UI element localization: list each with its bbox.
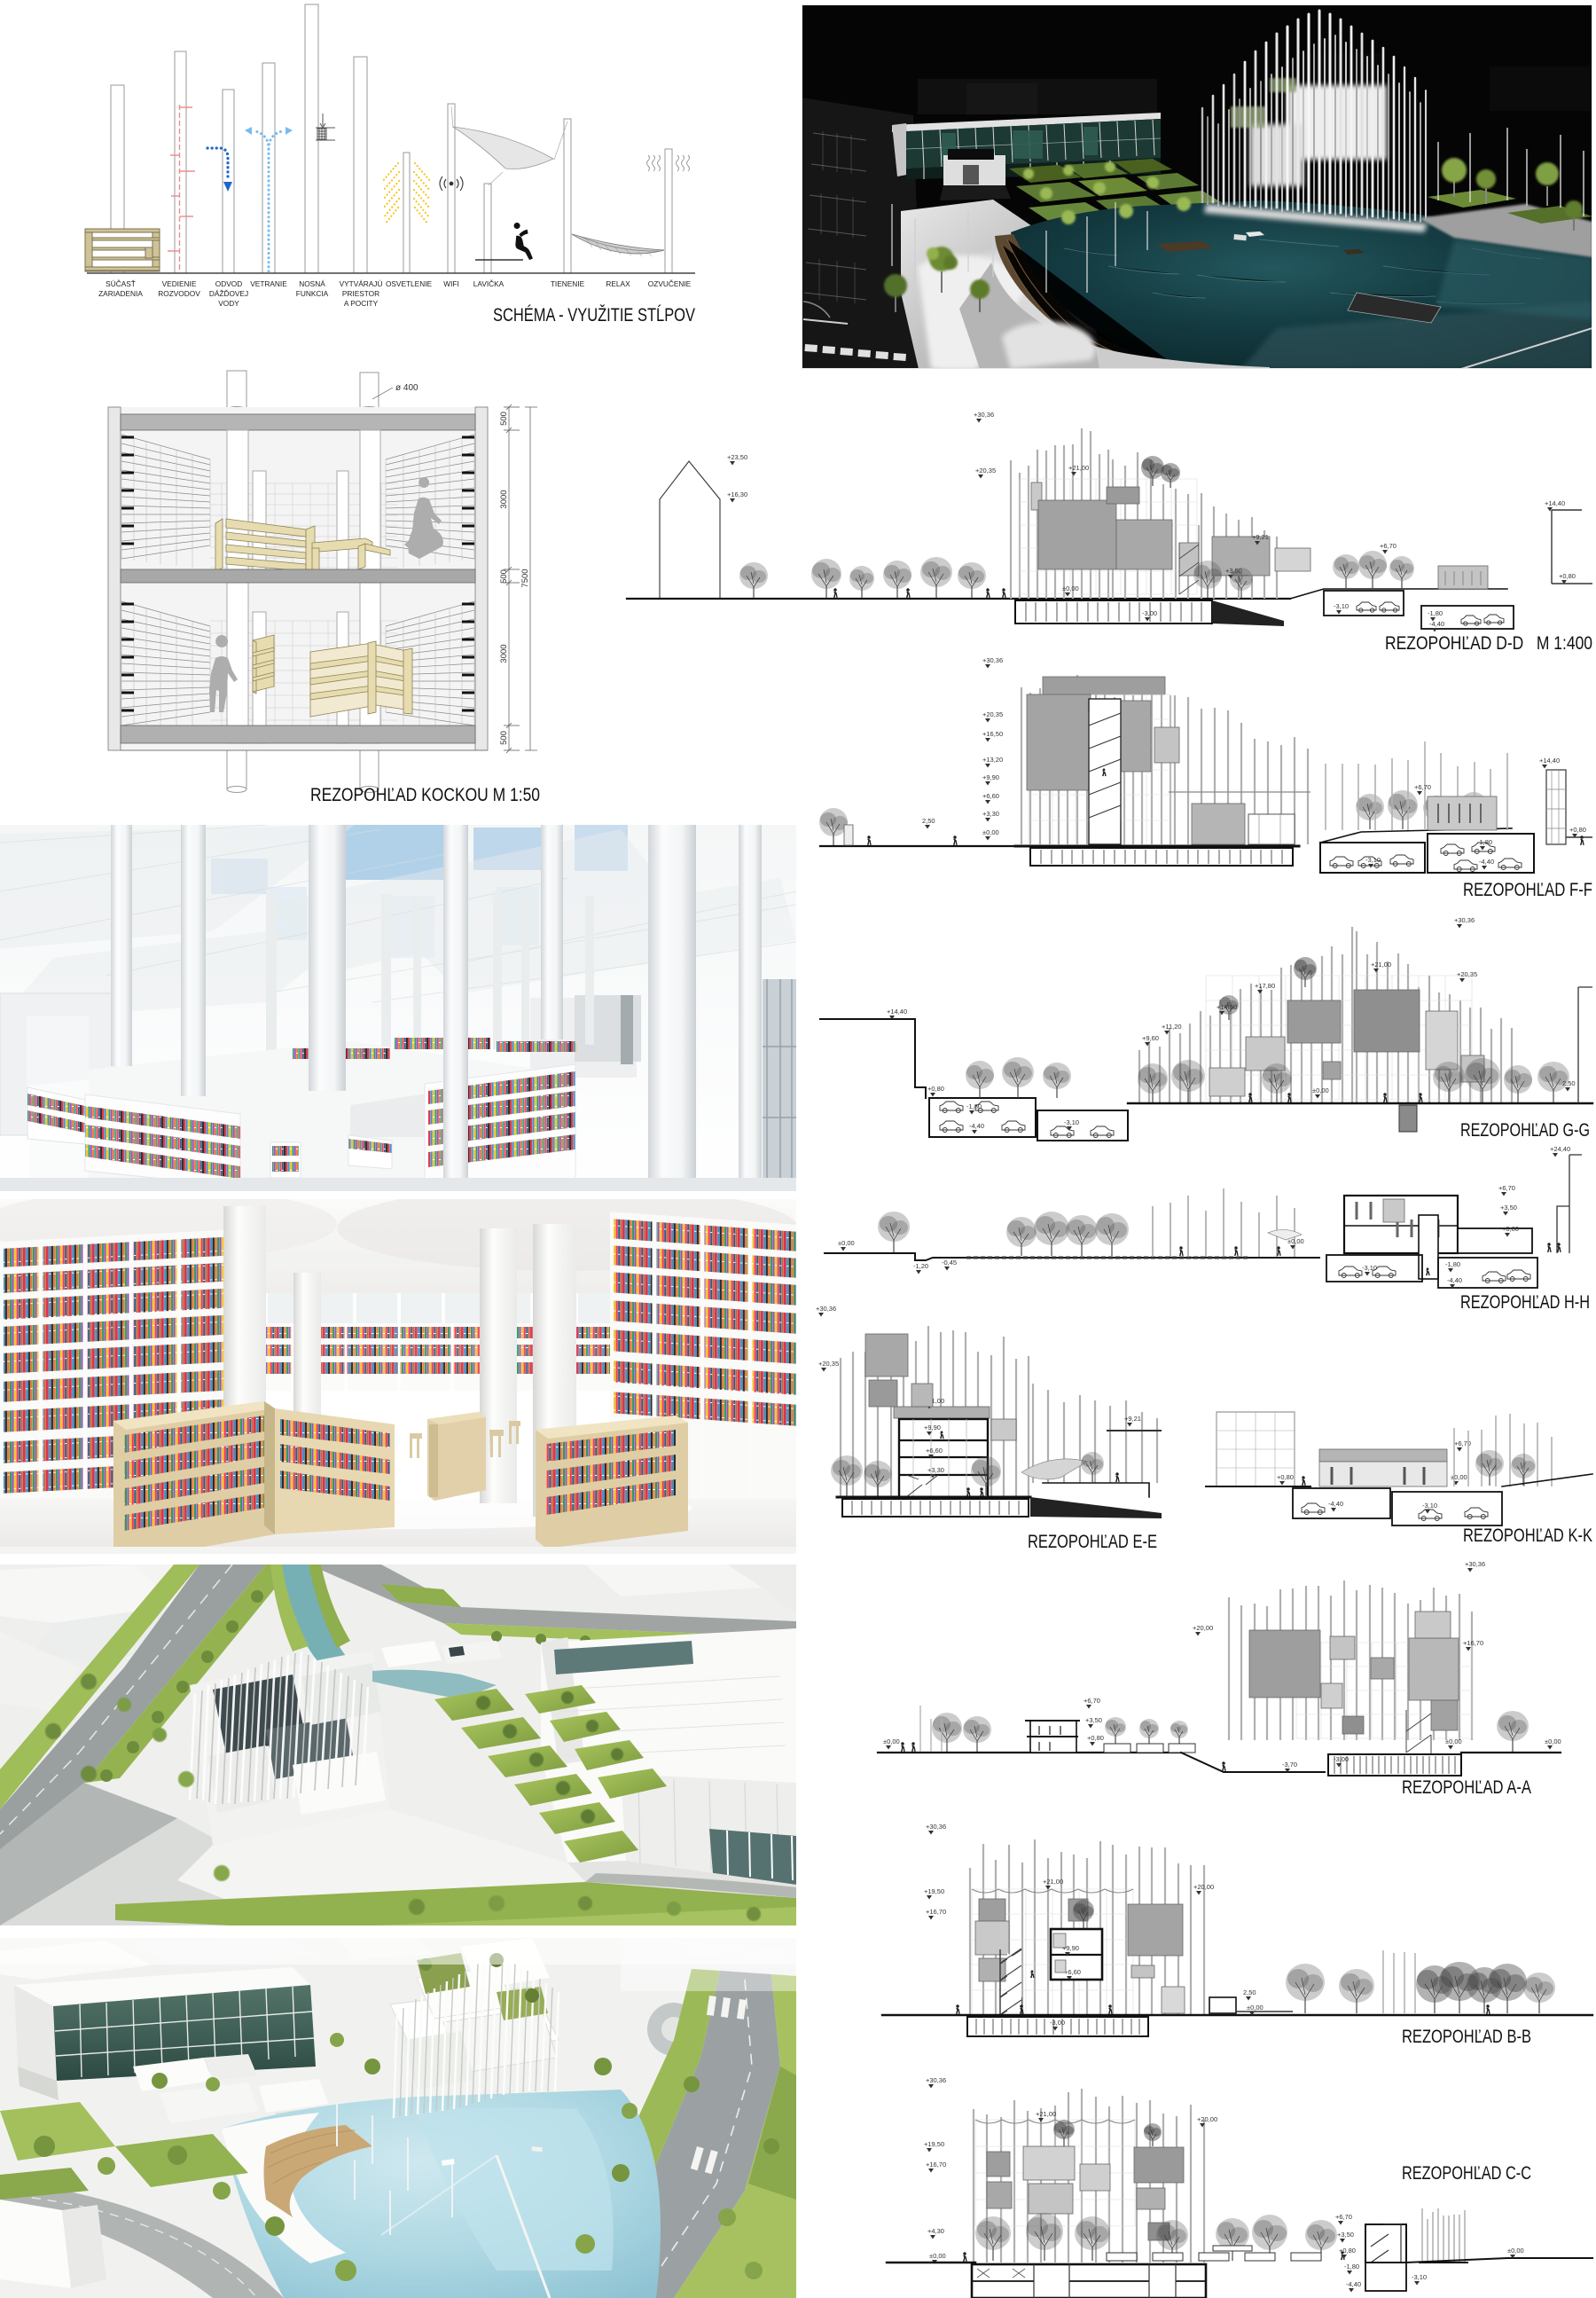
svg-text:-1,80: -1,80 <box>1445 1260 1460 1268</box>
svg-text:+30,36: +30,36 <box>926 2076 946 2084</box>
svg-text:-3,10: -3,10 <box>1334 602 1349 610</box>
svg-text:+30,36: +30,36 <box>816 1305 836 1313</box>
svg-text:-4,40: -4,40 <box>969 1122 984 1130</box>
svg-text:+20,00: +20,00 <box>1193 1624 1213 1632</box>
svg-text:LAVIČKA: LAVIČKA <box>473 279 505 288</box>
svg-text:RELAX: RELAX <box>606 279 630 288</box>
svg-text:+0,80: +0,80 <box>927 1085 944 1093</box>
svg-text:+9,60: +9,60 <box>1142 1034 1159 1042</box>
svg-text:REZOPOHĽAD KOCKOU M 1:50: REZOPOHĽAD KOCKOU M 1:50 <box>310 785 540 805</box>
svg-text:+9,21: +9,21 <box>1252 533 1269 541</box>
svg-text:A POCITY: A POCITY <box>344 299 379 308</box>
svg-text:SCHÉMA - VYUŽITIE STĹPOV: SCHÉMA - VYUŽITIE STĹPOV <box>493 305 695 325</box>
svg-text:-3,10: -3,10 <box>1362 1264 1377 1272</box>
svg-text:-4,40: -4,40 <box>1447 1276 1462 1284</box>
svg-text:-1,20: -1,20 <box>913 1262 928 1270</box>
svg-text:±0,00: ±0,00 <box>1062 584 1079 592</box>
svg-text:-3,10: -3,10 <box>1412 2273 1427 2281</box>
svg-text:+0,80: +0,80 <box>1569 826 1586 834</box>
svg-text:+0,80: +0,80 <box>1087 1734 1104 1742</box>
svg-text:-3,10: -3,10 <box>1422 1502 1437 1510</box>
svg-text:+20,35: +20,35 <box>818 1360 839 1368</box>
svg-text:+21,00: +21,00 <box>1043 1878 1063 1886</box>
svg-text:+16,70: +16,70 <box>926 1908 946 1916</box>
svg-text:REZOPOHĽAD K-K: REZOPOHĽAD K-K <box>1463 1525 1592 1546</box>
svg-text:ø 400: ø 400 <box>395 383 419 393</box>
svg-text:VODY: VODY <box>218 299 239 308</box>
svg-text:+0,80: +0,80 <box>1502 1225 1519 1233</box>
svg-text:+20,35: +20,35 <box>975 467 996 475</box>
svg-text:+0,80: +0,80 <box>1339 2247 1356 2255</box>
svg-text:+6,70: +6,70 <box>1084 1697 1100 1705</box>
svg-text:TIENENIE: TIENENIE <box>551 279 585 288</box>
svg-text:+30,36: +30,36 <box>926 1823 946 1831</box>
svg-text:+24,40: +24,40 <box>1550 1145 1570 1153</box>
svg-text:+30,36: +30,36 <box>974 411 994 419</box>
svg-text:500: 500 <box>499 412 509 426</box>
svg-text:-0,45: -0,45 <box>942 1259 957 1267</box>
svg-text:+20,00: +20,00 <box>1193 1883 1214 1891</box>
svg-text:-4,40: -4,40 <box>1429 620 1444 628</box>
svg-text:+14,40: +14,40 <box>1545 499 1565 507</box>
svg-text:2,50: 2,50 <box>1243 1988 1256 1996</box>
svg-text:-1,80: -1,80 <box>1344 2263 1359 2271</box>
svg-text:ROZVODOV: ROZVODOV <box>158 289 200 298</box>
svg-text:+16,70: +16,70 <box>1463 1639 1483 1647</box>
svg-text:+16,50: +16,50 <box>982 730 1003 738</box>
svg-text:+17,80: +17,80 <box>1255 982 1275 990</box>
svg-text:±0,00: ±0,00 <box>883 1737 900 1745</box>
svg-text:-3,00: -3,00 <box>1142 609 1157 617</box>
svg-text:REZOPOHĽAD H-H: REZOPOHĽAD H-H <box>1460 1292 1590 1313</box>
svg-text:+3,50: +3,50 <box>1085 1716 1102 1724</box>
svg-text:±0,00: ±0,00 <box>1507 2247 1524 2255</box>
svg-text:VYTVÁRAJÚ: VYTVÁRAJÚ <box>340 279 383 288</box>
svg-text:+30,36: +30,36 <box>1454 916 1475 924</box>
svg-text:-3,10: -3,10 <box>1365 856 1381 864</box>
svg-text:+14,50: +14,50 <box>1217 1003 1237 1011</box>
svg-text:VEDIENIE: VEDIENIE <box>162 279 197 288</box>
svg-text:+3,50: +3,50 <box>1337 2231 1354 2239</box>
svg-text:2,50: 2,50 <box>922 817 935 825</box>
svg-text:ODVOD: ODVOD <box>215 279 242 288</box>
svg-text:-4,40: -4,40 <box>1328 1500 1343 1508</box>
svg-text:500: 500 <box>499 731 509 745</box>
svg-text:+23,50: +23,50 <box>727 453 747 461</box>
svg-text:+6,60: +6,60 <box>1064 1968 1081 1976</box>
svg-text:±0,00: ±0,00 <box>982 828 999 836</box>
svg-text:+19,50: +19,50 <box>924 1887 944 1895</box>
svg-text:+13,20: +13,20 <box>982 756 1003 764</box>
svg-text:+3,30: +3,30 <box>982 810 999 818</box>
svg-text:+6,60: +6,60 <box>926 1447 943 1455</box>
svg-text:±0,00: ±0,00 <box>1451 1473 1467 1481</box>
svg-text:+20,00: +20,00 <box>1197 2115 1217 2123</box>
svg-text:+19,50: +19,50 <box>924 2140 944 2148</box>
svg-text:REZOPOHĽAD E-E: REZOPOHĽAD E-E <box>1028 1532 1157 1552</box>
svg-text:+9,90: +9,90 <box>924 1424 941 1431</box>
svg-text:+21,00: +21,00 <box>1068 464 1089 472</box>
svg-text:+3,30: +3,30 <box>927 1466 944 1474</box>
svg-text:+3,50: +3,50 <box>1500 1204 1517 1212</box>
svg-text:-1,80: -1,80 <box>1428 609 1443 617</box>
svg-text:7500: 7500 <box>520 569 530 587</box>
svg-text:±0,00: ±0,00 <box>929 2252 946 2260</box>
svg-text:REZOPOHĽAD C-C: REZOPOHĽAD C-C <box>1402 2163 1531 2184</box>
svg-text:±0,00: ±0,00 <box>838 1239 855 1247</box>
svg-text:+6,70: +6,70 <box>1335 2213 1352 2221</box>
svg-text:+14,40: +14,40 <box>1539 757 1560 765</box>
svg-text:OSVETLENIE: OSVETLENIE <box>386 279 433 288</box>
svg-text:±0,00: ±0,00 <box>1247 2004 1263 2012</box>
svg-text:±0,00: ±0,00 <box>1312 1086 1329 1094</box>
svg-text:±0,00: ±0,00 <box>1287 1237 1304 1245</box>
svg-text:500: 500 <box>499 569 509 584</box>
svg-text:-3,00: -3,00 <box>1050 2019 1065 2027</box>
svg-text:+21,00: +21,00 <box>1036 2110 1056 2118</box>
svg-text:±0,00: ±0,00 <box>1445 1737 1462 1745</box>
svg-text:2,50: 2,50 <box>1562 1079 1576 1087</box>
svg-text:-3,00: -3,00 <box>1334 1755 1349 1763</box>
svg-text:SÚČASŤ: SÚČASŤ <box>106 279 136 288</box>
svg-text:3000: 3000 <box>499 490 509 508</box>
svg-text:+9,90: +9,90 <box>982 773 999 781</box>
svg-text:+30,36: +30,36 <box>1465 1560 1485 1568</box>
svg-text:DÁŽĎOVEJ: DÁŽĎOVEJ <box>209 289 248 298</box>
svg-text:+6,70: +6,70 <box>1414 783 1431 791</box>
svg-text:+14,40: +14,40 <box>887 1008 907 1016</box>
svg-text:VETRANIE: VETRANIE <box>250 279 287 288</box>
svg-text:+11,20: +11,20 <box>1162 1023 1182 1031</box>
svg-text:+0,80: +0,80 <box>1559 572 1576 580</box>
svg-text:+30,36: +30,36 <box>982 656 1003 664</box>
svg-text:OZVUČENIE: OZVUČENIE <box>648 279 692 288</box>
svg-text:-3,70: -3,70 <box>1282 1761 1297 1769</box>
svg-text:REZOPOHĽAD F-F: REZOPOHĽAD F-F <box>1463 880 1592 900</box>
svg-text:-4,40: -4,40 <box>1346 2280 1361 2288</box>
svg-text:REZOPOHĽAD G-G: REZOPOHĽAD G-G <box>1460 1120 1590 1141</box>
svg-text:+4,30: +4,30 <box>927 2227 944 2235</box>
svg-text:-3,10: -3,10 <box>1064 1118 1079 1126</box>
svg-text:+6,70: +6,70 <box>1380 542 1396 550</box>
svg-text:+20,35: +20,35 <box>1457 970 1477 978</box>
svg-text:REZOPOHĽAD A-A: REZOPOHĽAD A-A <box>1402 1777 1531 1798</box>
svg-text:-1,80: -1,80 <box>1477 838 1492 846</box>
svg-text:+9,21: +9,21 <box>1124 1415 1141 1423</box>
svg-text:+20,35: +20,35 <box>982 710 1003 718</box>
svg-text:±0,00: ±0,00 <box>1545 1737 1561 1745</box>
svg-text:3000: 3000 <box>499 644 509 663</box>
svg-text:+21,00: +21,00 <box>1371 961 1391 969</box>
svg-text:-1,80: -1,80 <box>966 1102 982 1110</box>
svg-text:REZOPOHĽAD D-D M 1:400: REZOPOHĽAD D-D M 1:400 <box>1385 633 1592 654</box>
svg-text:+6,70: +6,70 <box>1498 1184 1515 1192</box>
svg-text:NOSNÁ: NOSNÁ <box>299 279 325 288</box>
svg-text:-4,40: -4,40 <box>1479 858 1494 866</box>
svg-text:+0,80: +0,80 <box>1277 1473 1294 1481</box>
svg-text:REZOPOHĽAD B-B: REZOPOHĽAD B-B <box>1402 2027 1531 2047</box>
svg-text:+16,30: +16,30 <box>727 490 747 498</box>
svg-text:FUNKCIA: FUNKCIA <box>296 289 329 298</box>
svg-text:PRIESTOR: PRIESTOR <box>342 289 379 298</box>
svg-text:WIFI: WIFI <box>443 279 459 288</box>
svg-text:+6,60: +6,60 <box>982 792 999 800</box>
svg-text:+16,70: +16,70 <box>926 2161 946 2169</box>
svg-text:ZARIADENIA: ZARIADENIA <box>98 289 143 298</box>
